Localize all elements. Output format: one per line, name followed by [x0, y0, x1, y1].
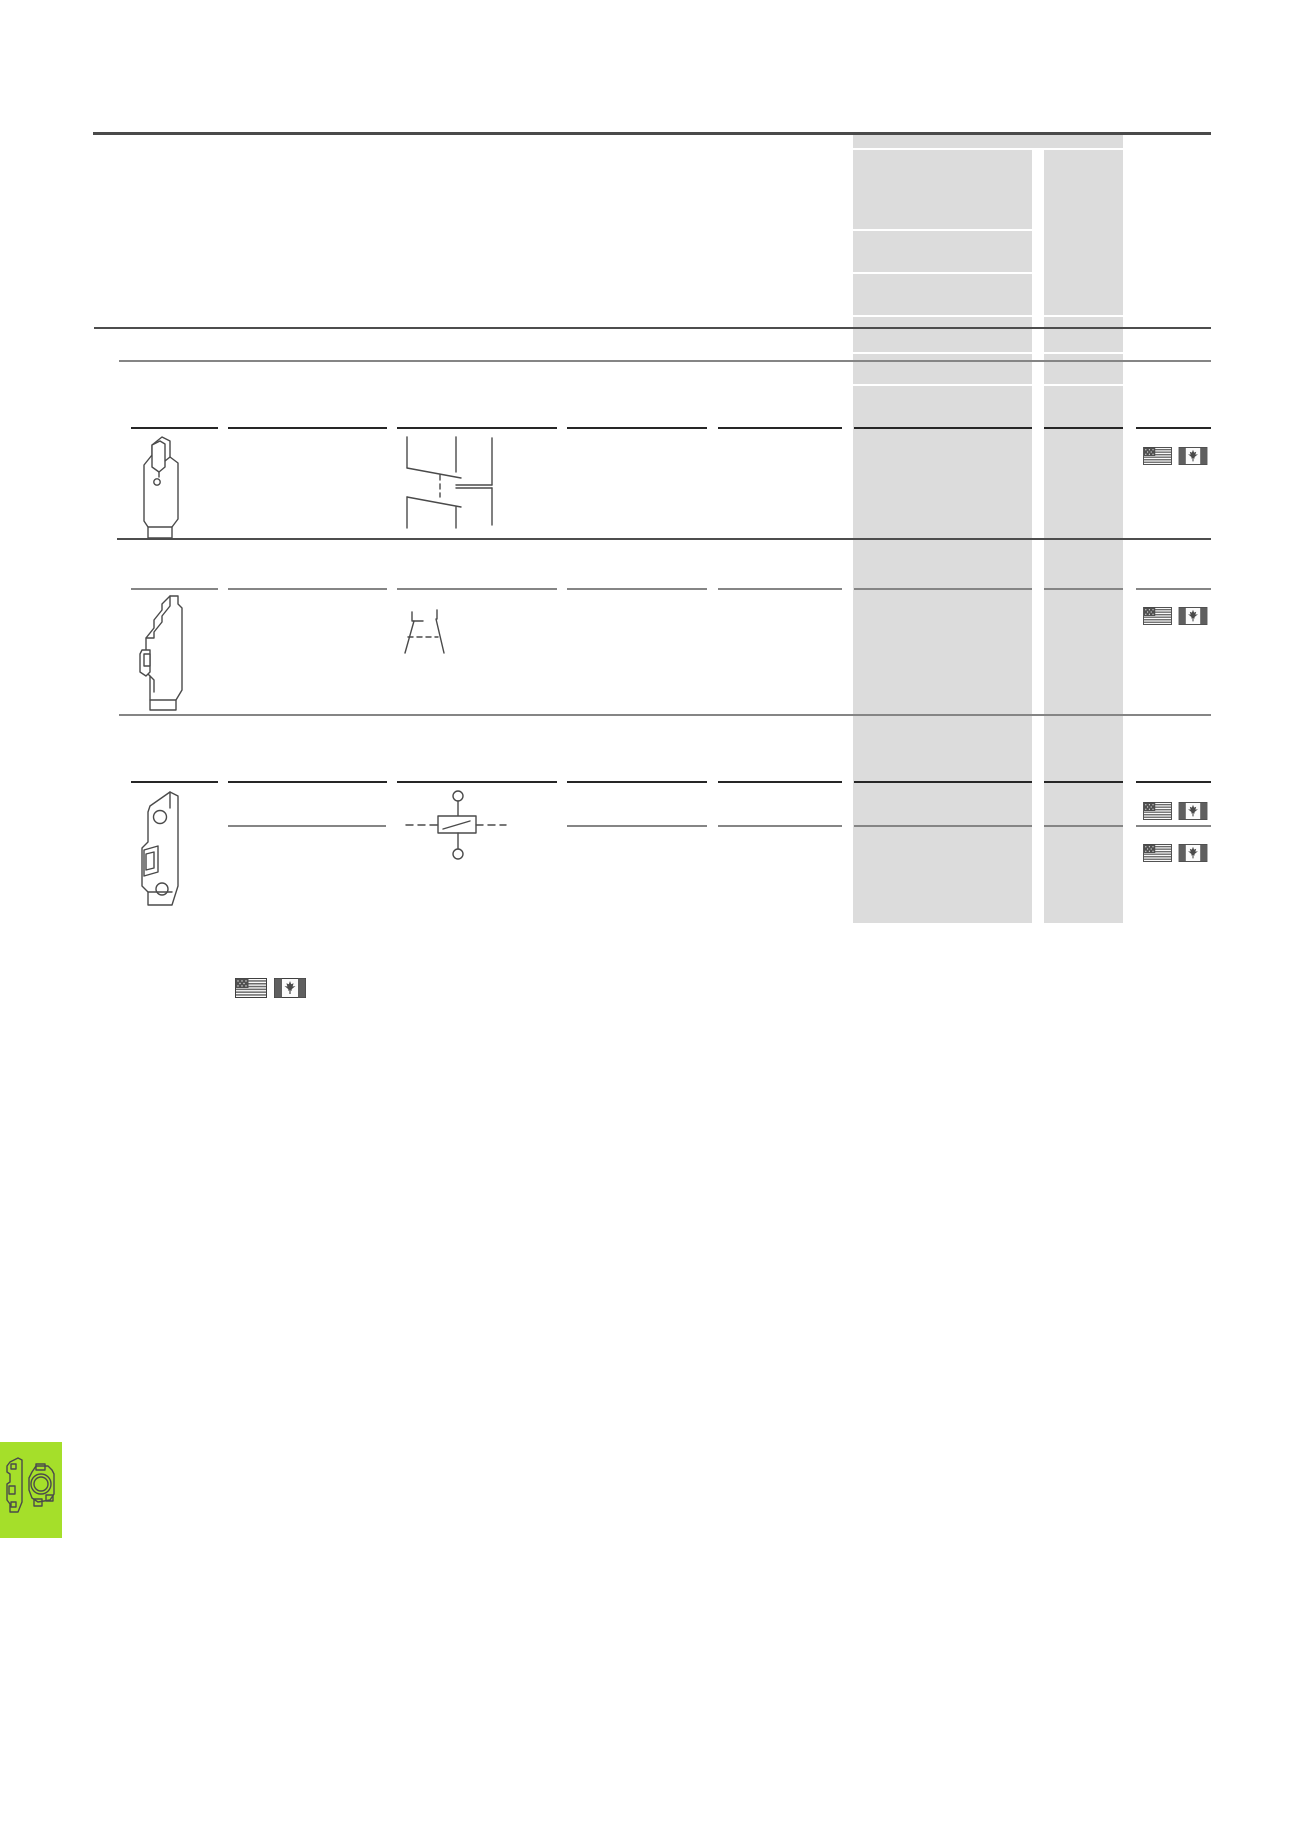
us-flag-icon: [235, 978, 267, 998]
row1-price-col-rule: [854, 427, 1032, 429]
shaded-column-divider: [1032, 148, 1044, 923]
row3b-col4-rule: [567, 825, 707, 827]
row-separator-2: [119, 714, 1211, 716]
section-rule-1: [94, 327, 1211, 329]
shade-divider-4: [853, 315, 1123, 317]
row3b-price-col-rule: [854, 825, 1032, 827]
canada-flag-icon: [1178, 607, 1208, 625]
row3-col2-rule: [228, 781, 387, 783]
product-image-row2: [136, 592, 192, 711]
row1-col1-rule: [131, 427, 218, 429]
us-flag-icon: [1143, 844, 1172, 862]
canada-flag-icon: [1178, 844, 1208, 862]
circuit-symbol-changeover-contact: [403, 435, 498, 530]
row3-approval-col-rule: [1136, 781, 1211, 783]
canada-flag-icon: [1178, 447, 1208, 465]
us-flag-icon: [1143, 447, 1172, 465]
row1-col4-rule: [567, 427, 707, 429]
row2-approval-col-rule: [1136, 588, 1211, 590]
round-flange-device-icon: [26, 1462, 58, 1510]
shade-divider-1: [853, 148, 1123, 150]
circuit-breaker-side-icon: [4, 1456, 26, 1514]
row2-price-col2-rule: [1044, 588, 1123, 590]
row2-col3-rule: [397, 588, 557, 590]
row-separator-1: [117, 538, 1211, 540]
row2-col1-rule: [131, 588, 218, 590]
row3b-col5-rule: [718, 825, 842, 827]
circuit-symbol-nc-contact: [402, 608, 448, 658]
canada-flag-icon: [1178, 802, 1208, 820]
canada-flag-icon: [274, 978, 306, 998]
row1-price-col2-rule: [1044, 427, 1123, 429]
shade-divider-3: [853, 272, 1032, 274]
shade-divider-6: [853, 384, 1123, 386]
green-corner-tab: [0, 1442, 62, 1538]
row3-col4-rule: [567, 781, 707, 783]
circuit-symbol-breaker: [400, 786, 508, 866]
row3-price-col-rule: [854, 781, 1032, 783]
us-flag-icon: [1143, 802, 1172, 820]
row3-col5-rule: [718, 781, 842, 783]
product-image-row3: [134, 786, 196, 906]
row2-col5-rule: [718, 588, 842, 590]
row2-col2-rule: [228, 588, 387, 590]
row3b-approval-col-rule: [1136, 825, 1211, 827]
shade-divider-5: [853, 352, 1123, 354]
row1-col3-rule: [397, 427, 557, 429]
us-flag-icon: [1143, 607, 1172, 625]
catalog-page: [0, 0, 1300, 1841]
shade-divider-2: [853, 229, 1032, 231]
row3-col3-rule: [397, 781, 557, 783]
row1-col2-rule: [228, 427, 387, 429]
row1-approval-col-rule: [1136, 427, 1211, 429]
row2-col4-rule: [567, 588, 707, 590]
row1-col5-rule: [718, 427, 842, 429]
row2-price-col-rule: [854, 588, 1032, 590]
product-image-row1: [136, 433, 190, 539]
row3b-col2-rule: [228, 825, 386, 827]
row3-col1-rule: [131, 781, 218, 783]
section-rule-2: [119, 360, 1211, 362]
shaded-price-column: [853, 135, 1123, 923]
row3-price-col2-rule: [1044, 781, 1123, 783]
row3b-price-col2-rule: [1044, 825, 1123, 827]
